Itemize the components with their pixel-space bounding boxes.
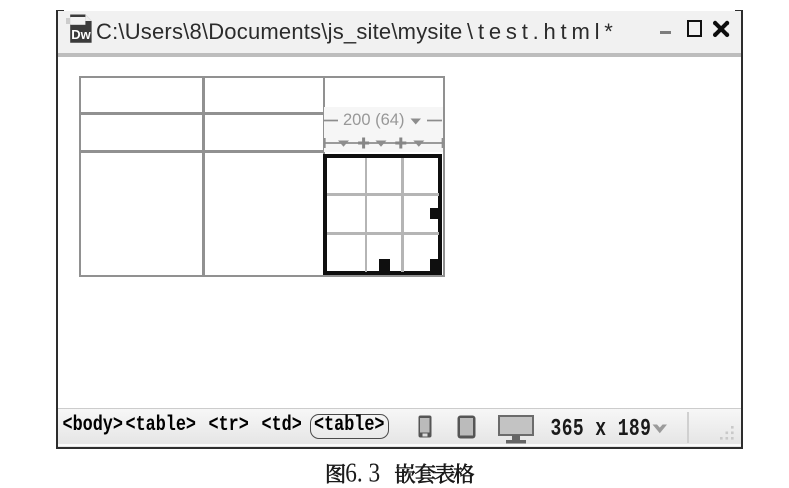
svg-text:Dw: Dw <box>71 27 91 42</box>
svg-text:6. 3: 6. 3 <box>345 459 380 488</box>
svg-text:200 (64): 200 (64) <box>343 111 404 129</box>
